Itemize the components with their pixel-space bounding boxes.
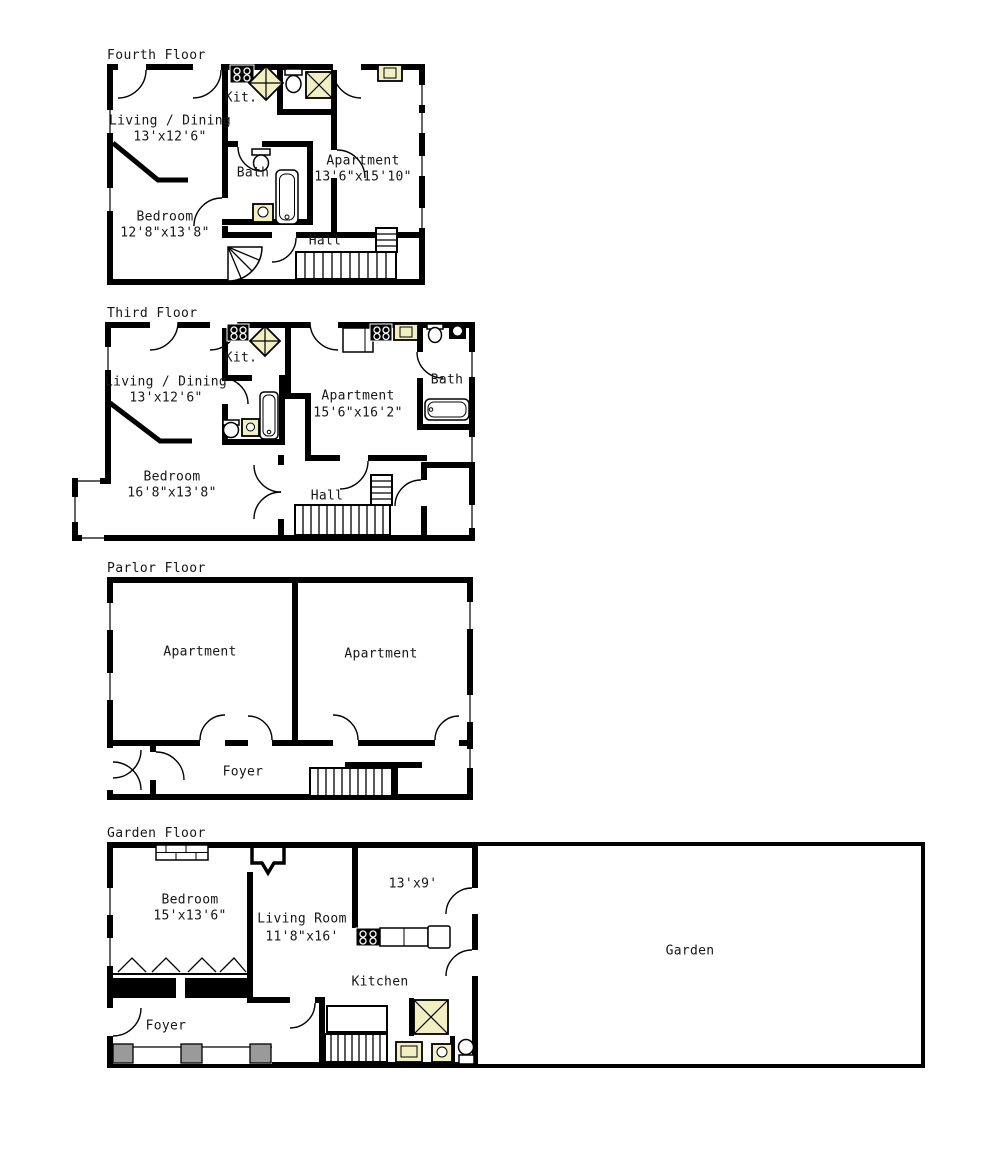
stove-icon — [230, 65, 254, 83]
toilet-icon — [427, 324, 443, 343]
room-dims-apartment: 13'6"x15'10" — [314, 170, 412, 185]
parlor-floor-title: Parlor Floor — [107, 561, 206, 576]
sink-icon — [394, 324, 418, 340]
door-icon — [118, 70, 146, 98]
entry-door-icon — [113, 750, 141, 778]
room-dims-living: 11'8"x16' — [265, 930, 338, 945]
room-label-hall: Hall — [311, 489, 344, 504]
garden-floor-walls — [107, 842, 925, 1068]
sink-icon — [242, 419, 259, 436]
room-label-living: Living / Dining — [105, 375, 227, 390]
door-icon — [395, 480, 421, 506]
door-icon — [435, 716, 459, 740]
room-label-apartment: Apartment — [321, 389, 394, 404]
stairs-icon — [325, 1006, 387, 1062]
door-icon — [193, 70, 221, 98]
stove-icon — [356, 928, 380, 946]
room-label-bath: Bath — [237, 166, 270, 181]
stove-icon — [227, 324, 249, 341]
entry-vestibule — [252, 848, 284, 873]
room-label-kitchen: Kit. — [225, 351, 258, 366]
door-icon — [254, 465, 281, 492]
door-icon — [333, 70, 361, 98]
winder-stairs-icon — [228, 247, 262, 281]
bathtub-icon — [425, 399, 469, 420]
fireplace-icon — [156, 845, 208, 860]
parlor-floor-walls — [107, 577, 473, 800]
parlor-floor-doors — [113, 715, 459, 790]
fourth-floor-title: Fourth Floor — [107, 48, 206, 63]
door-icon — [113, 1008, 141, 1036]
sink-icon — [449, 324, 466, 339]
sink-icon — [432, 1044, 452, 1062]
partial-wall — [110, 403, 192, 441]
room-label-bath: Bath — [431, 373, 464, 388]
room-label-bedroom: Bedroom — [162, 893, 219, 908]
room-label-kitchen: Kit. — [225, 91, 258, 106]
pedestal-sink-icon — [459, 1040, 475, 1065]
sink-icon — [396, 1042, 422, 1062]
door-icon — [254, 492, 281, 519]
door-icon — [156, 752, 184, 780]
sink-icon — [253, 204, 273, 222]
room-label-garden: Garden — [666, 944, 715, 959]
sink-icon — [378, 65, 402, 81]
stairs-icon — [310, 768, 392, 796]
room-label-hall: Hall — [309, 234, 342, 249]
floor-plans-page: Fourth Floor Living / Dining 13'x12'6" K… — [0, 0, 1008, 1152]
door-icon — [333, 715, 358, 740]
room-label-living: Living Room — [257, 912, 346, 927]
bathtub-icon — [276, 170, 298, 224]
room-dims-small-room: 13'x9' — [389, 877, 438, 892]
room-dims-bedroom: 15'x13'6" — [153, 909, 226, 924]
toilet-icon — [223, 420, 239, 438]
parlor-floor-windows — [107, 602, 473, 790]
room-dims-apartment: 15'6"x16'2" — [313, 406, 402, 421]
door-icon — [446, 888, 472, 914]
counter-icon — [380, 926, 450, 948]
room-label-apartment-left: Apartment — [163, 645, 236, 660]
stairs-icon — [295, 475, 392, 535]
skylight-icon — [306, 72, 332, 98]
bathtub-icon — [260, 392, 278, 439]
door-icon — [194, 198, 222, 226]
skylight-icon — [414, 1000, 448, 1034]
door-icon — [290, 1003, 315, 1028]
room-dims-bedroom: 12'8"x13'8" — [120, 226, 209, 241]
room-label-apartment: Apartment — [326, 154, 399, 169]
room-label-bedroom: Bedroom — [137, 210, 194, 225]
toilet-icon — [285, 69, 302, 93]
garden-floor-title: Garden Floor — [107, 826, 206, 841]
room-label-bedroom: Bedroom — [144, 470, 201, 485]
door-icon — [446, 950, 472, 976]
closet-rod-icon — [113, 958, 247, 974]
third-floor-title: Third Floor — [107, 306, 198, 321]
cabinet-icon — [343, 328, 373, 352]
room-dims-bedroom: 16'8"x13'8" — [127, 486, 216, 501]
door-icon — [248, 716, 272, 740]
door-icon — [272, 238, 296, 262]
door-icon — [200, 715, 225, 740]
entry-door-icon — [113, 762, 141, 790]
room-label-apartment-right: Apartment — [344, 647, 417, 662]
garden-floor-plan — [107, 842, 925, 1068]
room-dims-living: 13'x12'6" — [133, 130, 206, 145]
partial-wall — [113, 143, 188, 180]
third-floor-plan — [72, 322, 475, 541]
room-label-kitchen: Kitchen — [352, 975, 409, 990]
parlor-floor-plan — [107, 577, 473, 800]
room-label-living: Living / Dining — [109, 114, 231, 129]
stove-icon — [370, 324, 392, 341]
door-icon — [340, 461, 368, 489]
room-label-foyer: Foyer — [223, 765, 264, 780]
room-dims-living: 13'x12'6" — [129, 391, 202, 406]
plan-drawing — [0, 0, 1008, 1152]
room-label-foyer: Foyer — [146, 1019, 187, 1034]
